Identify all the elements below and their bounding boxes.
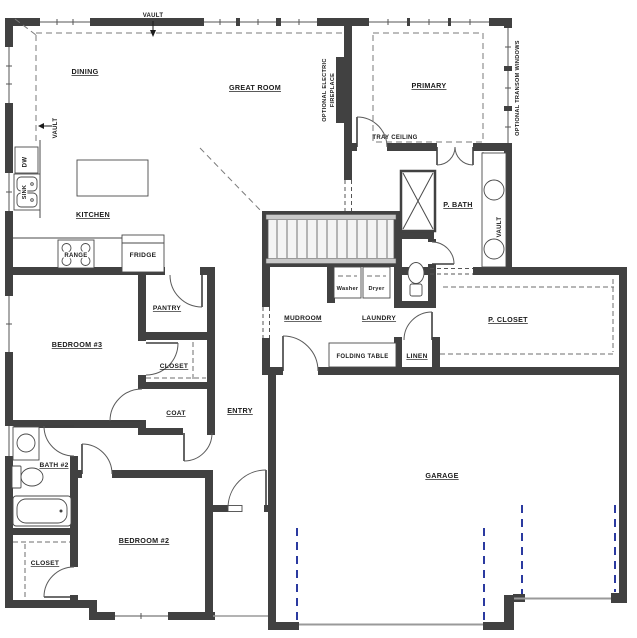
annotation-vault-top: VAULT bbox=[143, 13, 164, 19]
interior-walls bbox=[5, 26, 627, 602]
annotation-optional-electric-fireplace: OPTIONAL ELECTRIC bbox=[322, 58, 328, 121]
room-label-garage: GARAGE bbox=[425, 471, 458, 480]
annotation-optional-electric-fireplace: FIREPLACE bbox=[330, 73, 336, 107]
room-label-mudroom: MUDROOM bbox=[284, 315, 322, 322]
floor-plan-page: DINING GREAT ROOM PRIMARY KITCHEN PANTRY… bbox=[0, 0, 637, 638]
burner-icon bbox=[81, 244, 90, 253]
closet-shelving bbox=[13, 279, 614, 598]
bath2-door bbox=[44, 426, 74, 456]
dryer-box bbox=[363, 267, 390, 298]
room-label-bedroom2: BEDROOM #2 bbox=[119, 536, 170, 545]
fireplace-icon bbox=[336, 57, 349, 123]
room-label-bath2: BATH #2 bbox=[39, 462, 68, 469]
fixture-label-washer: Washer bbox=[337, 286, 359, 292]
fixture-label-dryer: Dryer bbox=[368, 286, 385, 292]
annotation-vault-bath: VAULT bbox=[497, 217, 503, 238]
toilet-icon bbox=[408, 263, 424, 297]
garage-man-door bbox=[283, 336, 318, 371]
annotation-tray-ceiling: TRAY CEILING bbox=[372, 135, 417, 141]
floor-plan-svg: DINING GREAT ROOM PRIMARY KITCHEN PANTRY… bbox=[0, 0, 637, 638]
exterior-walls bbox=[5, 18, 627, 630]
pantry-door bbox=[170, 275, 202, 307]
front-door bbox=[228, 470, 266, 508]
linen-door bbox=[404, 312, 432, 340]
sink-icon bbox=[484, 239, 504, 259]
room-label-dining: DINING bbox=[72, 67, 99, 76]
washer-box bbox=[334, 267, 361, 298]
sink-icon bbox=[484, 180, 504, 200]
fixture-label-sink: SINK bbox=[22, 185, 28, 200]
bathtub-icon bbox=[13, 496, 71, 526]
room-label-p antry: PANTRY bbox=[153, 305, 181, 312]
room-label-bedroom3: BEDROOM #3 bbox=[52, 340, 103, 349]
room-label-primary: PRIMARY bbox=[412, 81, 447, 90]
fixture-label-range: RANGE bbox=[64, 253, 87, 259]
kitchen-island bbox=[77, 160, 148, 196]
room-label-linen: LINEN bbox=[406, 353, 427, 360]
room-label-laundry: LAUNDRY bbox=[362, 315, 396, 322]
bedroom3-door bbox=[110, 389, 142, 421]
room-label-p-closet: P. CLOSET bbox=[488, 315, 528, 324]
sink-icon bbox=[17, 434, 35, 452]
shower-icon bbox=[401, 171, 435, 231]
toilet-icon bbox=[12, 466, 43, 488]
bed3-closet-door bbox=[146, 343, 178, 375]
bedroom2-door bbox=[82, 444, 112, 474]
windows bbox=[5, 18, 513, 620]
fixture-label-folding-table: FOLDING TABLE bbox=[336, 354, 388, 360]
annotation-optional-transom-windows: OPTIONAL TRANSOM WINDOWS bbox=[515, 40, 521, 136]
vault-arrow-left bbox=[38, 123, 52, 129]
room-label-great-room: GREAT ROOM bbox=[229, 83, 281, 92]
burner-icon bbox=[62, 244, 71, 253]
room-label-closet-bed3: CLOSET bbox=[160, 363, 189, 370]
primary-door bbox=[357, 117, 387, 147]
bed2-closet-door bbox=[44, 567, 74, 597]
coat-door bbox=[184, 433, 212, 461]
room-label-coat: COAT bbox=[166, 410, 185, 417]
room-label-p-bath: P. BATH bbox=[443, 200, 472, 209]
fixture-label-dw: DW bbox=[23, 157, 29, 168]
annotation-vault-left: VAULT bbox=[53, 118, 59, 139]
room-label-closet-bed2: CLOSET bbox=[31, 560, 60, 567]
water-closet-door bbox=[432, 242, 454, 264]
primary-bath-french-doors bbox=[437, 147, 473, 165]
staircase bbox=[266, 215, 396, 264]
room-label-entry: ENTRY bbox=[227, 406, 253, 415]
room-label-kitchen: KITCHEN bbox=[76, 210, 110, 219]
fixture-label-fridge: FRIDGE bbox=[130, 252, 157, 259]
